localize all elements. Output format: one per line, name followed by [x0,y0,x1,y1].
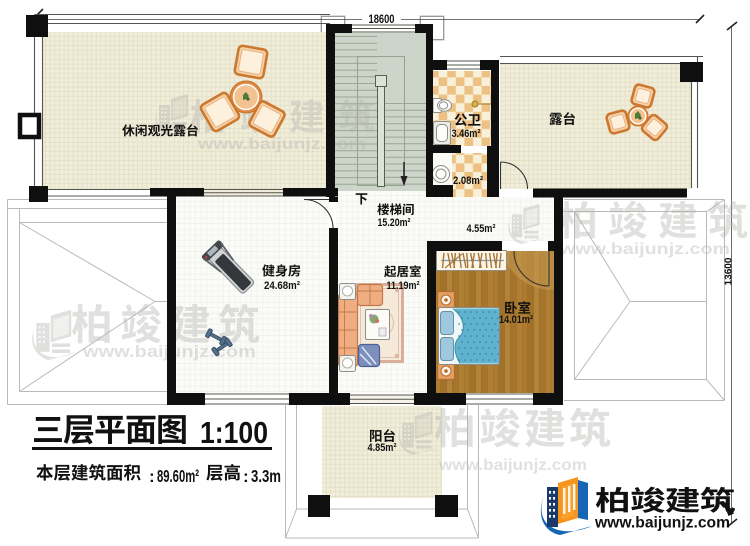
svg-text:www.baijunjz.com: www.baijunjz.com [197,136,366,153]
svg-text:11.19m²: 11.19m² [387,280,420,292]
svg-text:14.01m²: 14.01m² [499,314,533,326]
svg-text::: : [149,467,155,486]
svg-text::: : [243,467,249,486]
svg-text:24.68m²: 24.68m² [264,280,300,292]
svg-text:www.baijunjz.com: www.baijunjz.com [438,457,587,474]
svg-text:3.46m²: 3.46m² [452,128,481,140]
svg-text:www.baijunjz.com: www.baijunjz.com [594,515,730,532]
svg-text:3.3m: 3.3m [251,466,281,486]
svg-text:15.20m²: 15.20m² [378,217,411,229]
svg-text:89.60m²: 89.60m² [157,466,199,486]
svg-text:13600: 13600 [723,257,735,285]
svg-text:www.baijunjz.com: www.baijunjz.com [559,241,730,258]
svg-text:4.85m²: 4.85m² [368,442,397,454]
svg-text:1:100: 1:100 [200,415,268,450]
svg-text:2.08m²: 2.08m² [453,175,483,187]
svg-text:18600: 18600 [369,14,395,26]
svg-text:4.55m²: 4.55m² [467,223,496,235]
